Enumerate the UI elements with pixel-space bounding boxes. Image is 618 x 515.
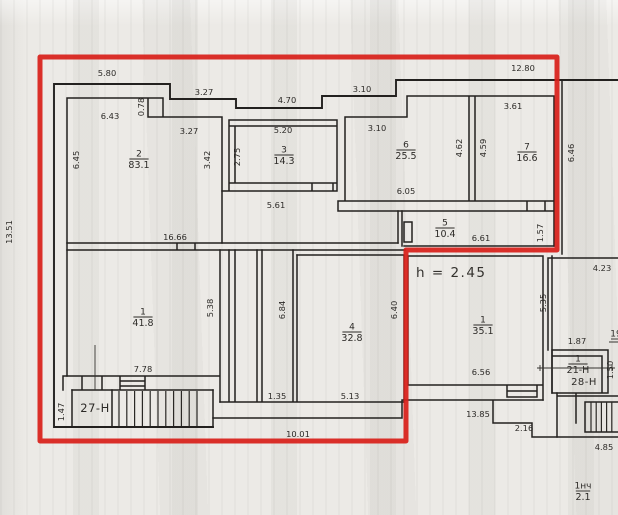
- room-number: 1нч: [575, 482, 592, 492]
- dimension-label: 3.10: [368, 123, 386, 133]
- dimension-label: 2.16: [515, 423, 533, 433]
- dimension-label: 3.10: [353, 84, 371, 94]
- dimension-label: 6.46: [566, 144, 576, 162]
- dimension-label: 4.59: [478, 139, 488, 157]
- dimension-label: 4.85: [595, 442, 613, 452]
- dimension-label: 6.56: [472, 367, 490, 377]
- dimension-label: 12.80: [511, 63, 535, 73]
- room-number: 6: [403, 141, 409, 151]
- dimension-label: 0.78: [136, 98, 146, 116]
- room-number: 4: [349, 323, 355, 333]
- middle-wall: [67, 243, 405, 250]
- room-area: 16.6: [516, 153, 537, 164]
- stair-right-hatch: [591, 402, 612, 432]
- unit-label: 27-Н: [80, 401, 109, 415]
- dimension-label: 5.35: [538, 294, 548, 312]
- dimension-label: 6.43: [101, 111, 119, 121]
- room2-walls: [67, 98, 222, 376]
- room-area: 10.4: [434, 229, 455, 240]
- stair-right-walls: [557, 393, 618, 437]
- room-area: 2.1: [575, 492, 590, 503]
- height-note: h = 2.45: [416, 265, 487, 281]
- dimension-label: 5.80: [98, 68, 116, 78]
- room-area: 25.5: [395, 151, 416, 162]
- room-number: 19: [610, 330, 618, 340]
- floor-plan-drawing: 5.803.274.703.1012.803.616.430.783.273.1…: [0, 0, 618, 515]
- room-number: 1: [480, 316, 486, 326]
- outer-walls: [54, 80, 618, 427]
- room-number: 5: [442, 219, 448, 229]
- dimension-label: 3.27: [195, 87, 213, 97]
- room-area: 41.8: [132, 318, 153, 329]
- dimension-label: 6.05: [397, 186, 415, 196]
- dimension-label: 5.20: [274, 125, 292, 135]
- room-number: 2: [136, 150, 142, 160]
- dimension-label: 10.01: [286, 429, 310, 439]
- floor-plan-scan: 5.803.274.703.1012.803.616.430.783.273.1…: [0, 0, 618, 515]
- dimension-label: 3.42: [202, 151, 212, 169]
- room-area: 83.1: [128, 160, 149, 171]
- dimension-label: 2.75: [232, 148, 242, 166]
- room-number: 7: [524, 143, 530, 153]
- dimension-label: 4.23: [593, 263, 611, 273]
- dimension-label: 7.78: [134, 364, 152, 374]
- dimension-label: 5.38: [205, 299, 215, 317]
- dimension-label: 1.35: [268, 391, 286, 401]
- dimension-label: 6.61: [472, 233, 490, 243]
- dimension-label: 6.45: [71, 151, 81, 169]
- dimension-label: 1.50: [605, 361, 615, 379]
- dimension-label: 6.40: [389, 301, 399, 319]
- unit-label: 28-Н: [571, 377, 597, 388]
- room-number: 1: [140, 308, 146, 318]
- dimension-label: 4.70: [278, 95, 296, 105]
- room-area: 21-Н: [567, 365, 590, 376]
- dimension-label: 3.27: [180, 126, 198, 136]
- dimension-label: 6.84: [277, 301, 287, 319]
- walls: [54, 80, 618, 437]
- dimension-label: 5.61: [267, 200, 285, 210]
- dimension-label: 3.61: [504, 101, 522, 111]
- dimension-label: 5.13: [341, 391, 359, 401]
- dimension-label: 4.62: [454, 139, 464, 157]
- room-area: 32.8: [341, 333, 362, 344]
- dimension-label: 1.47: [56, 403, 66, 421]
- dimension-label: 16.66: [163, 232, 187, 242]
- room-labels: 283.1314.3625.5716.6510.4141.8432.8135.1…: [128, 141, 618, 504]
- dimension-label: 1.57: [535, 224, 545, 242]
- ceiling-height-note: h = 2.45: [416, 265, 487, 281]
- shaft-walls: [220, 250, 404, 402]
- dimension-label: 13.51: [4, 220, 14, 244]
- stair-left-hatch: [119, 391, 197, 426]
- dimension-labels: 5.803.274.703.1012.803.616.430.783.273.1…: [4, 63, 615, 452]
- room-number: 3: [281, 146, 287, 156]
- room-area: 35.1: [472, 326, 493, 337]
- room-area: 14.3: [273, 156, 294, 167]
- stair-hatching: [119, 391, 612, 432]
- dimension-label: 13.85: [466, 409, 490, 419]
- dimension-label: 1.87: [568, 336, 586, 346]
- room-number: 1: [575, 355, 581, 365]
